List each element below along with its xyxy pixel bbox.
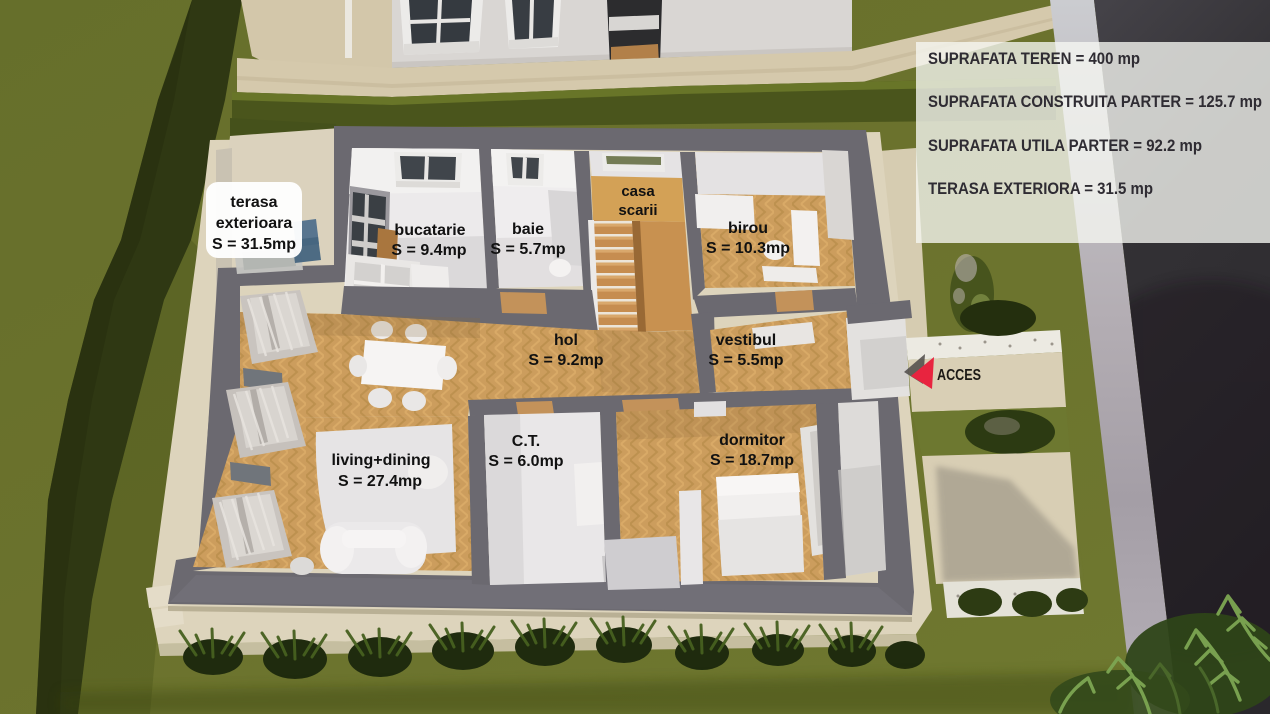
svg-text:dormitor: dormitor [719,432,785,449]
svg-text:bucatarie: bucatarie [394,222,465,239]
svg-text:S = 9.2mp: S = 9.2mp [528,352,603,369]
svg-text:living+dining: living+dining [331,452,430,469]
svg-text:SUPRAFATA TEREN = 400 mp: SUPRAFATA TEREN = 400 mp [928,49,1140,68]
svg-text:S = 10.3mp: S = 10.3mp [706,240,790,257]
svg-text:scarii: scarii [618,202,657,219]
svg-text:S = 9.4mp: S = 9.4mp [391,242,466,259]
svg-text:S = 6.0mp: S = 6.0mp [488,453,563,470]
svg-text:S = 18.7mp: S = 18.7mp [710,452,794,469]
svg-text:S = 31.5mp: S = 31.5mp [212,236,296,253]
svg-text:terasa: terasa [230,194,277,211]
svg-text:SUPRAFATA CONSTRUITA PARTER =: SUPRAFATA CONSTRUITA PARTER = 125.7 mp [928,92,1262,111]
svg-text:vestibul: vestibul [716,332,776,349]
svg-text:baie: baie [512,221,544,238]
svg-text:C.T.: C.T. [512,433,540,450]
svg-text:exterioara: exterioara [216,215,293,232]
svg-text:S = 5.7mp: S = 5.7mp [490,241,565,258]
svg-text:S = 5.5mp: S = 5.5mp [708,352,783,369]
svg-text:birou: birou [728,220,768,237]
svg-text:SUPRAFATA UTILA PARTER = 92.2: SUPRAFATA UTILA PARTER = 92.2 mp [928,136,1202,155]
svg-text:TERASA EXTERIORA = 31.5 mp: TERASA EXTERIORA = 31.5 mp [928,179,1153,198]
svg-text:ACCES: ACCES [937,367,981,384]
svg-text:casa: casa [621,183,655,200]
svg-text:S = 27.4mp: S = 27.4mp [338,473,422,490]
svg-text:hol: hol [554,332,578,349]
